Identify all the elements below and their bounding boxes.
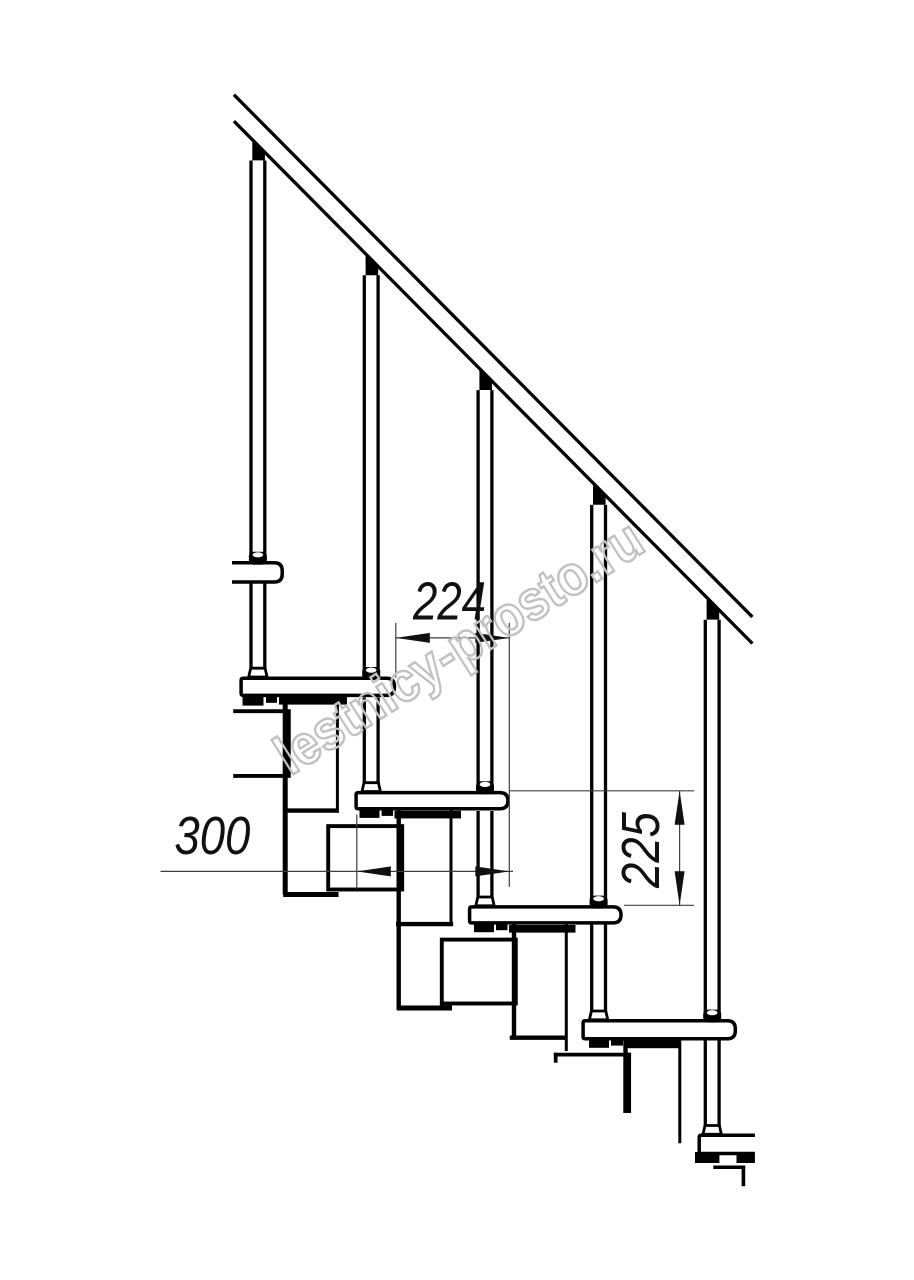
svg-text:300: 300 — [174, 806, 250, 866]
svg-text:lestnicy-prosto.ru: lestnicy-prosto.ru — [263, 507, 654, 787]
svg-text:225: 225 — [611, 811, 671, 889]
